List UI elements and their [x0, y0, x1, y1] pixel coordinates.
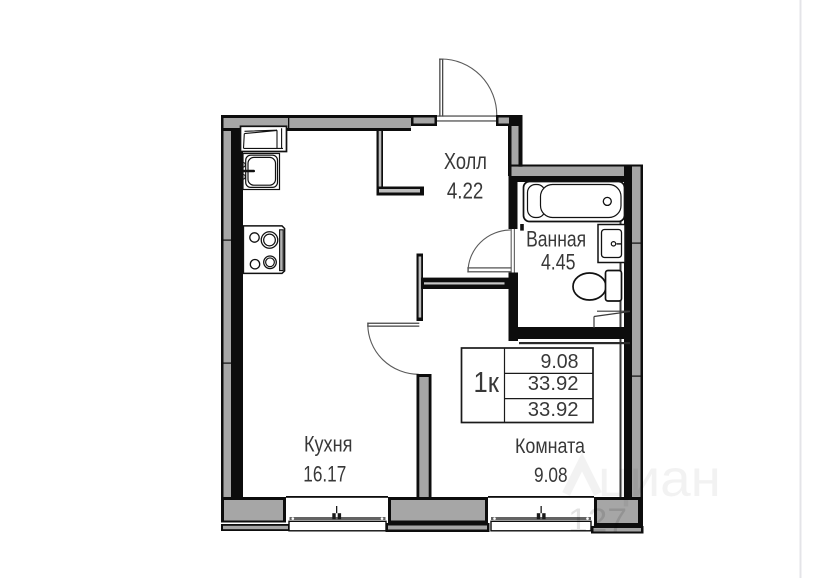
svg-text:16.17: 16.17: [303, 462, 346, 487]
svg-text:Холл: Холл: [444, 148, 487, 174]
svg-text:4.22: 4.22: [447, 177, 484, 203]
svg-text:33.92: 33.92: [528, 399, 579, 421]
svg-text:9.08: 9.08: [541, 351, 579, 373]
svg-text:127: 127: [568, 502, 627, 539]
svg-text:Ванная: Ванная: [526, 226, 586, 251]
svg-text:Комната: Комната: [515, 434, 585, 458]
svg-text:Кухня: Кухня: [304, 432, 353, 457]
svg-text:9.08: 9.08: [534, 463, 568, 487]
svg-text:циан: циан: [598, 450, 721, 508]
svg-text:4.45: 4.45: [541, 250, 576, 275]
svg-text:1к: 1к: [474, 367, 500, 399]
svg-text:33.92: 33.92: [528, 373, 579, 395]
